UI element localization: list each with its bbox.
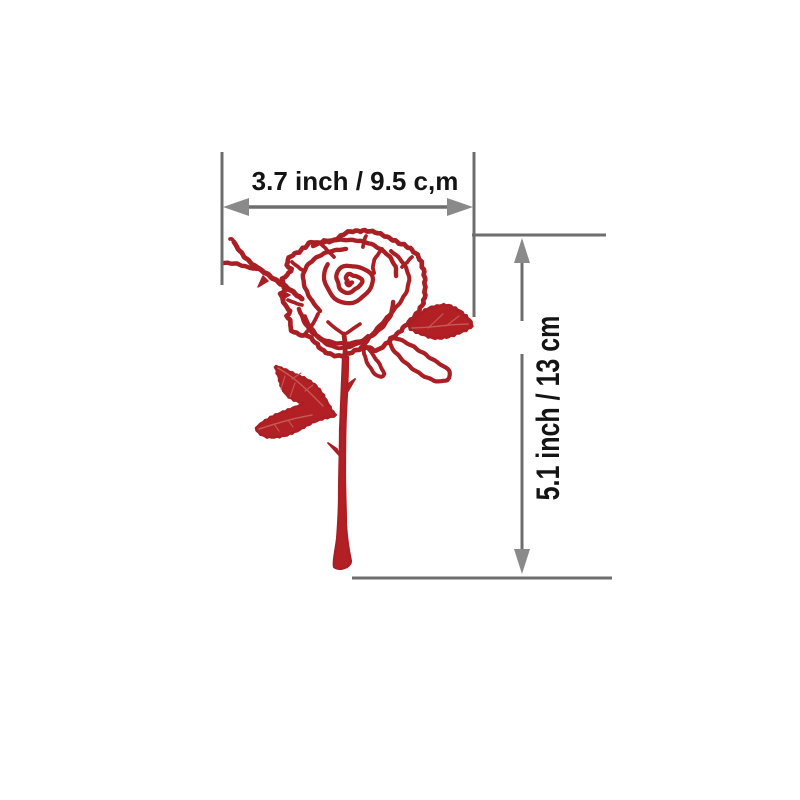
- svg-text:5.1 inch / 13 cm: 5.1 inch / 13 cm: [531, 316, 567, 501]
- svg-text:3.7 inch / 9.5 c,m: 3.7 inch / 9.5 c,m: [252, 166, 459, 196]
